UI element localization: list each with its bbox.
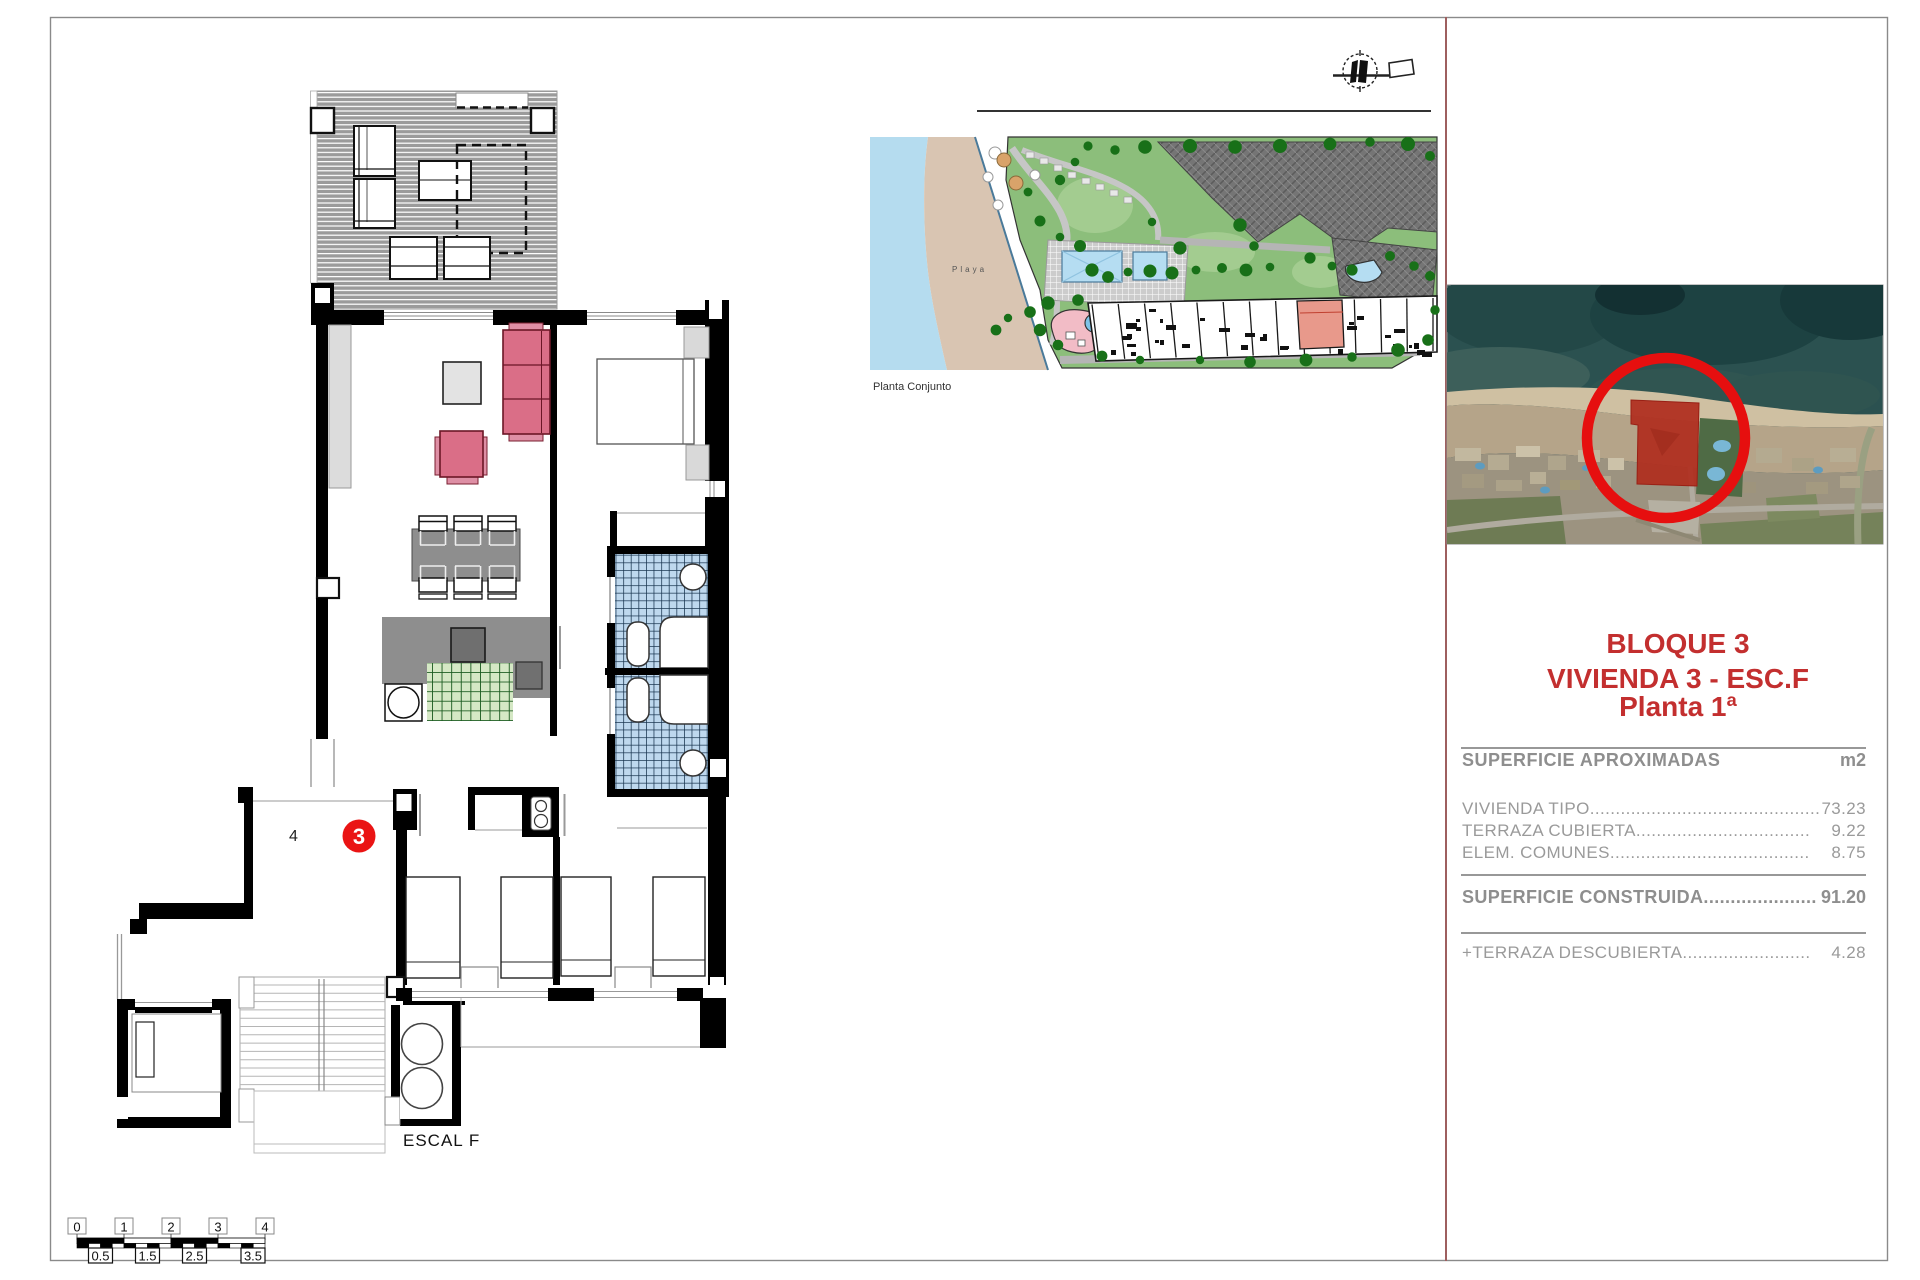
- svg-text:2: 2: [167, 1220, 174, 1235]
- svg-text:3: 3: [353, 824, 365, 849]
- svg-text:3: 3: [214, 1220, 221, 1235]
- svg-text:2.5: 2.5: [185, 1249, 203, 1264]
- svg-text:3.5: 3.5: [244, 1249, 262, 1264]
- svg-text:VIVIENDA 3 - ESC.F: VIVIENDA 3 - ESC.F: [1547, 663, 1809, 694]
- svg-text:ESCAL F: ESCAL F: [403, 1131, 480, 1150]
- svg-text:m2: m2: [1840, 750, 1866, 770]
- svg-text:0.5: 0.5: [91, 1249, 109, 1264]
- svg-text:0: 0: [73, 1220, 80, 1235]
- svg-text:4.28: 4.28: [1831, 943, 1866, 962]
- svg-text:VIVIENDA TIPO.................: VIVIENDA TIPO...........................…: [1462, 799, 1820, 818]
- svg-text:SUPERFICIE CONSTRUIDA.........: SUPERFICIE CONSTRUIDA...................…: [1462, 887, 1817, 907]
- svg-text:8.75: 8.75: [1831, 843, 1866, 862]
- svg-text:1: 1: [120, 1220, 127, 1235]
- svg-text:73.23: 73.23: [1821, 799, 1866, 818]
- svg-text:91.20: 91.20: [1821, 887, 1866, 907]
- svg-text:BLOQUE 3: BLOQUE 3: [1606, 628, 1749, 659]
- svg-text:SUPERFICIE APROXIMADAS: SUPERFICIE APROXIMADAS: [1462, 750, 1720, 770]
- svg-text:TERRAZA CUBIERTA..............: TERRAZA CUBIERTA........................…: [1462, 821, 1810, 840]
- svg-text:Playa: Playa: [952, 265, 987, 274]
- svg-text:Planta Conjunto: Planta Conjunto: [873, 381, 951, 393]
- svg-text:Planta 1ª: Planta 1ª: [1619, 691, 1737, 722]
- svg-text:4: 4: [261, 1220, 268, 1235]
- svg-text:1.5: 1.5: [138, 1249, 156, 1264]
- svg-text:9.22: 9.22: [1831, 821, 1866, 840]
- svg-text:4: 4: [289, 828, 298, 845]
- svg-text:+TERRAZA DESCUBIERTA..........: +TERRAZA DESCUBIERTA....................…: [1462, 943, 1810, 962]
- svg-text:ELEM. COMUNES.................: ELEM. COMUNES...........................…: [1462, 843, 1810, 862]
